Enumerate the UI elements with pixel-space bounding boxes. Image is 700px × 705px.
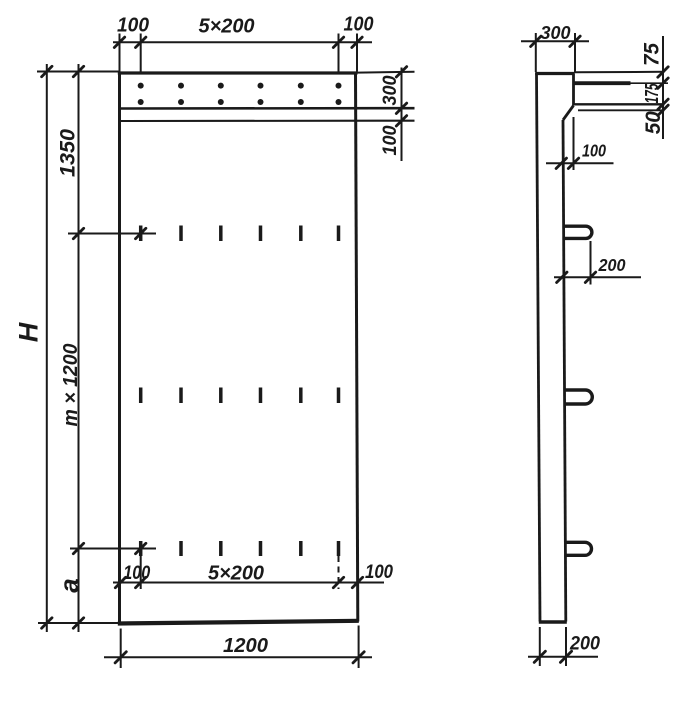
svg-text:100: 100 — [117, 15, 149, 37]
svg-text:200: 200 — [598, 255, 626, 275]
svg-text:300: 300 — [541, 22, 572, 43]
svg-text:100: 100 — [365, 562, 393, 583]
svg-text:100: 100 — [380, 125, 401, 155]
svg-text:100: 100 — [344, 14, 374, 36]
svg-text:m × 1200: m × 1200 — [60, 344, 82, 427]
svg-text:300: 300 — [380, 75, 401, 105]
svg-text:200: 200 — [569, 634, 600, 655]
svg-text:5×200: 5×200 — [199, 16, 255, 38]
svg-text:50: 50 — [642, 111, 665, 134]
svg-text:100: 100 — [582, 141, 606, 161]
svg-text:a: a — [54, 578, 84, 592]
svg-text:1350: 1350 — [57, 129, 80, 177]
svg-text:1200: 1200 — [223, 635, 268, 657]
svg-text:5×200: 5×200 — [208, 563, 264, 585]
svg-text:175: 175 — [642, 83, 662, 104]
svg-text:75: 75 — [641, 43, 664, 66]
svg-text:100: 100 — [123, 563, 150, 584]
svg-text:H: H — [14, 322, 44, 342]
